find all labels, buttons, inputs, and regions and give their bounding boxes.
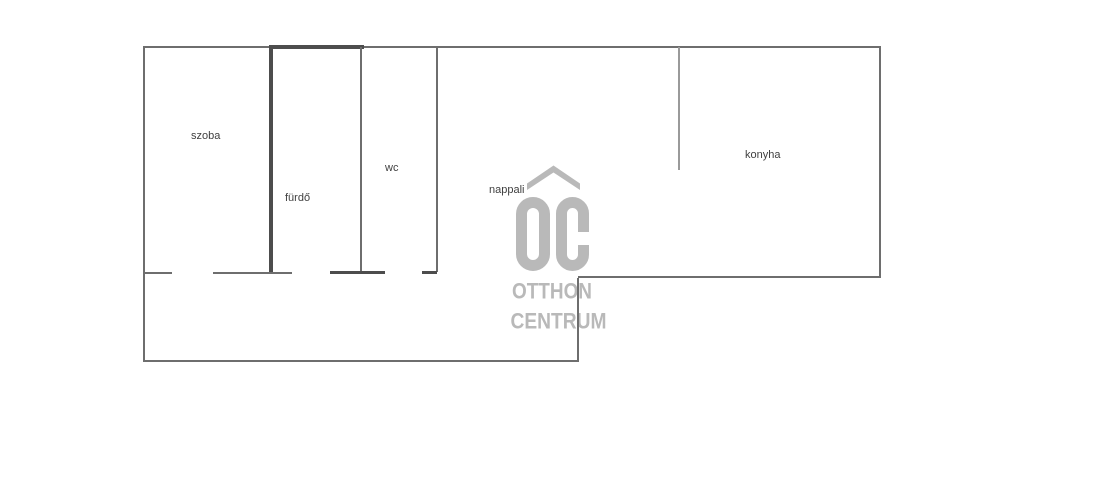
room-label-nappali: nappali xyxy=(489,184,524,197)
room-konyha xyxy=(680,48,879,276)
room-label-furdo: fürdő xyxy=(285,192,310,205)
room-nappali xyxy=(438,48,678,276)
wall-hall-bottom xyxy=(144,360,579,362)
wall-bottom-right xyxy=(578,276,881,278)
room-wc xyxy=(362,48,436,274)
room-hall xyxy=(145,274,577,360)
wall-furdo-wc xyxy=(360,47,362,273)
room-label-szoba: szoba xyxy=(191,130,220,143)
wall-wc-nappali xyxy=(436,47,438,272)
room-label-wc: wc xyxy=(385,162,398,175)
room-szoba xyxy=(145,48,269,274)
wall-bottom-seg-wc xyxy=(330,271,385,274)
wall-nappali-konyha xyxy=(678,47,680,170)
wall-bottom-seg-mid xyxy=(213,272,292,274)
wall-szoba-furdo xyxy=(269,46,273,274)
wall-top-thick-segment xyxy=(269,45,364,49)
wall-right xyxy=(879,46,881,278)
wall-bottom-seg-szoba xyxy=(144,272,172,274)
wall-bottom-seg-foot xyxy=(422,271,437,274)
wall-hall-right xyxy=(577,278,579,362)
wall-top xyxy=(144,46,881,48)
room-furdo xyxy=(273,48,360,274)
floor-plan: OTTHON CENTRUM szoba fürdő wc nappali ko… xyxy=(0,0,1109,500)
wall-left xyxy=(143,46,145,362)
room-label-konyha: konyha xyxy=(745,149,780,162)
